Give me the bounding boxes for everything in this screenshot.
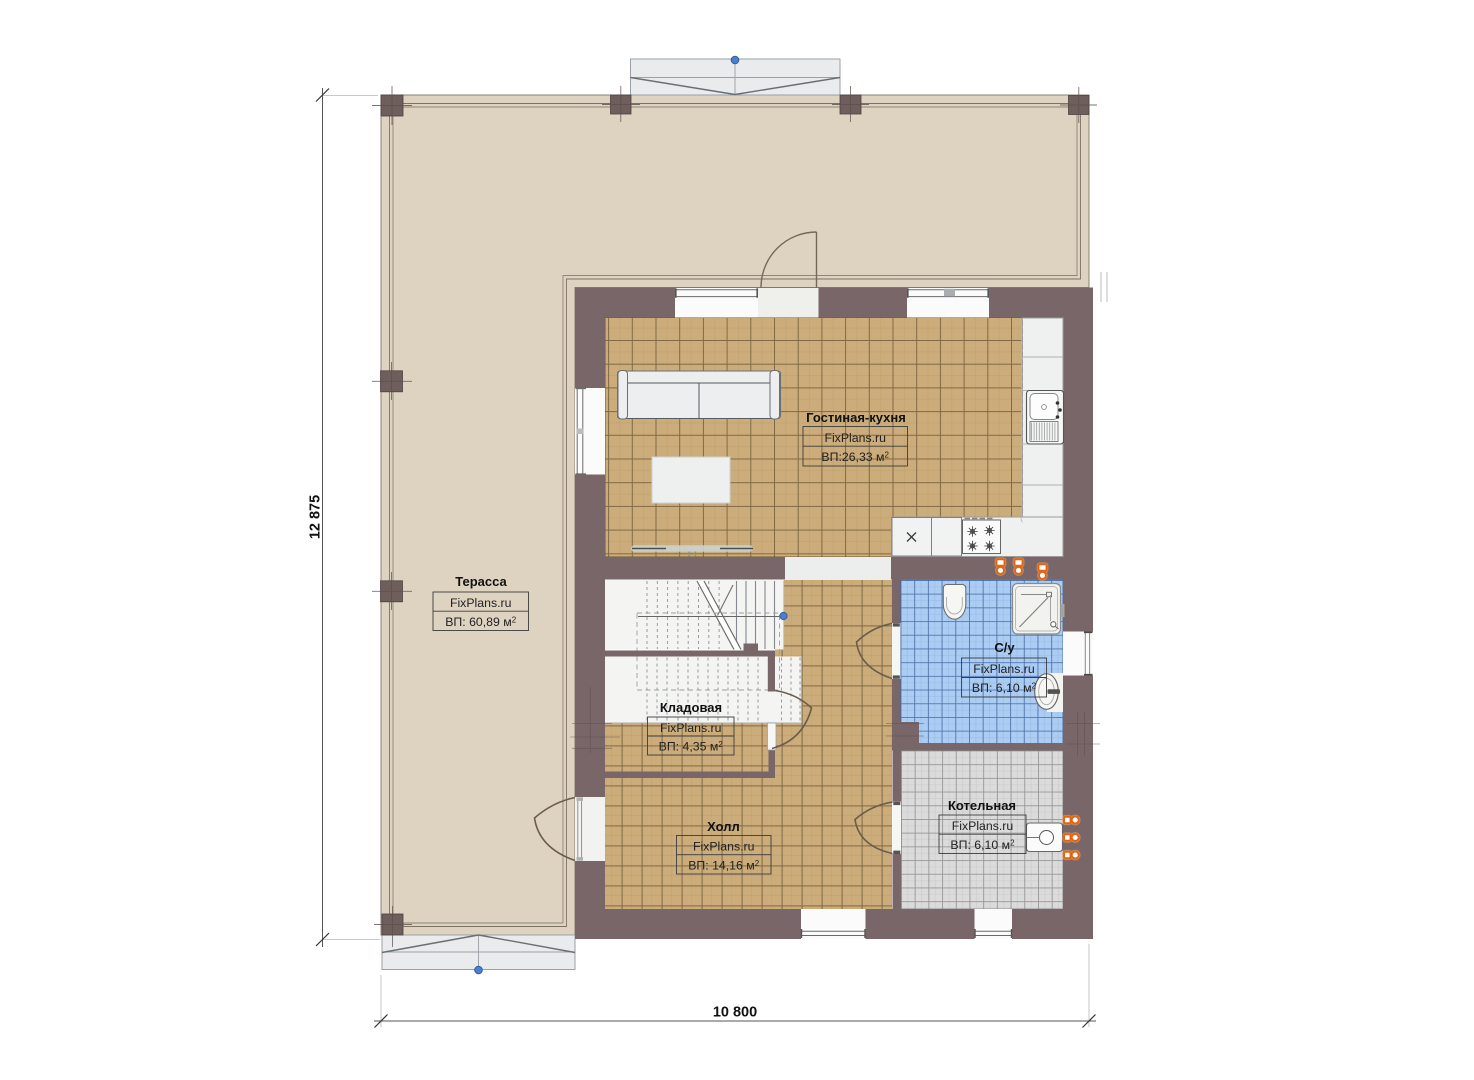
svg-text:Холл: Холл — [707, 819, 740, 834]
svg-text:FixPlans.ru: FixPlans.ru — [450, 596, 512, 610]
svg-text:FixPlans.ru: FixPlans.ru — [824, 431, 886, 445]
svg-text:ВП: 6,10 м2: ВП: 6,10 м2 — [972, 681, 1037, 695]
svg-text:ВП: 14,16 м2: ВП: 14,16 м2 — [688, 859, 760, 873]
svg-text:Гостиная-кухня: Гостиная-кухня — [806, 410, 906, 425]
svg-text:С/у: С/у — [994, 640, 1015, 655]
svg-text:FixPlans.ru: FixPlans.ru — [973, 662, 1035, 676]
svg-text:10 800: 10 800 — [713, 1005, 757, 1021]
svg-text:ВП: 60,89 м2: ВП: 60,89 м2 — [445, 615, 517, 629]
svg-text:Кладовая: Кладовая — [660, 700, 722, 715]
svg-text:FixPlans.ru: FixPlans.ru — [952, 819, 1014, 833]
svg-text:FixPlans.ru: FixPlans.ru — [693, 840, 755, 854]
svg-text:Котельная: Котельная — [948, 798, 1016, 813]
svg-text:Терасса: Терасса — [455, 574, 507, 589]
svg-text:ВП: 6,10 м2: ВП: 6,10 м2 — [950, 838, 1015, 852]
svg-text:FixPlans.ru: FixPlans.ru — [660, 721, 722, 735]
svg-text:ВП: 4,35 м2: ВП: 4,35 м2 — [659, 740, 724, 754]
svg-text:ВП:26,33 м2: ВП:26,33 м2 — [821, 450, 889, 464]
svg-text:12 875: 12 875 — [308, 495, 324, 539]
